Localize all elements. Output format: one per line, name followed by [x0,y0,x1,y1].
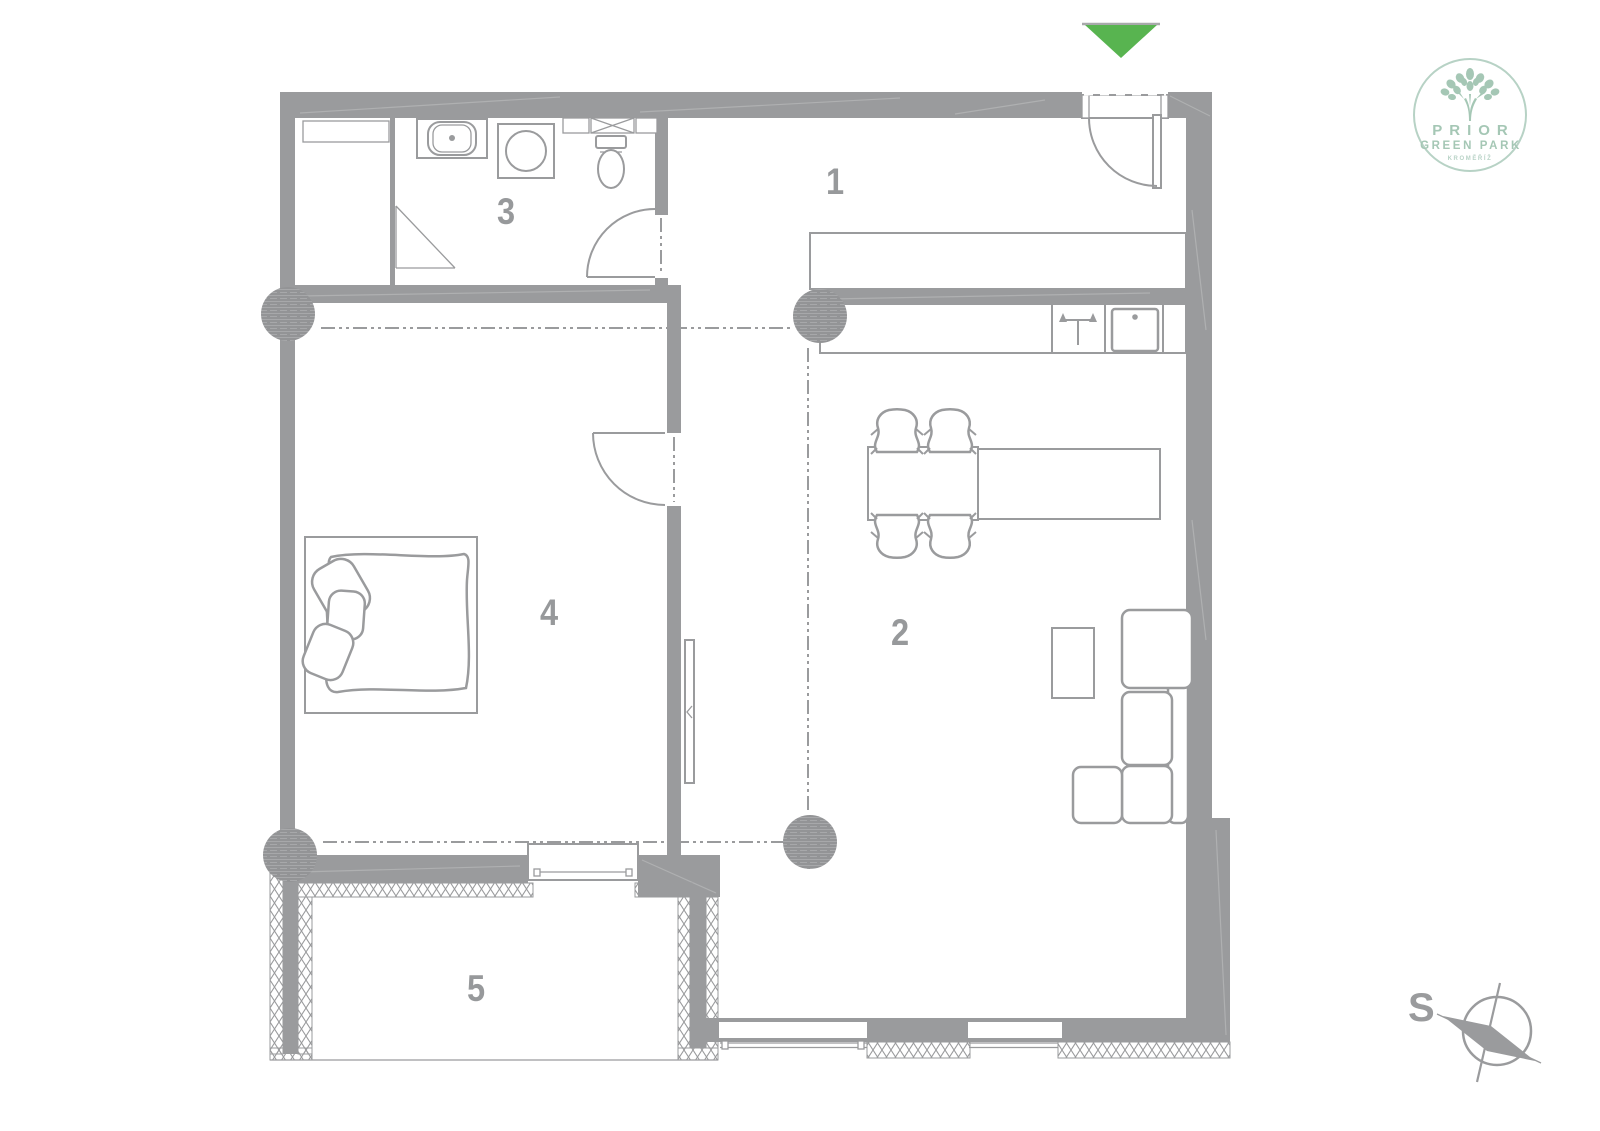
logo-subtitle: GREEN PARK [1415,140,1525,152]
room-label-2: 2 [891,612,909,654]
room-label-4: 4 [540,592,558,634]
balcony-door [528,844,638,880]
logo-prior-green-park: PRIOR GREEN PARK KROMĚŘÍŽ [1413,58,1527,172]
dining-chair [871,409,923,454]
compass-south-label: S [1408,986,1435,1031]
radiator-icon [685,640,694,783]
closet-door [396,206,455,268]
column [783,815,837,869]
bed [299,537,477,713]
kitchen-counter [820,304,1186,353]
column [263,828,317,882]
ottoman [1073,767,1122,823]
logo-title: PRIOR [1415,122,1525,139]
washing-machine-icon [498,124,554,178]
bathroom-fixtures [303,118,661,285]
floor-plan-drawing [0,0,1600,1131]
column [261,287,315,341]
bathroom-door [587,209,661,277]
coffee-table [1052,628,1094,698]
toilet-icon [596,136,626,188]
bedroom-door [593,433,674,505]
floor-plan-page: 1 2 3 4 5 PRIOR GREEN PARK KROMĚŘÍŽ S [0,0,1600,1131]
room-label-1: 1 [826,161,844,203]
kitchen-sink-icon [1112,309,1158,351]
dining-chair [924,409,976,454]
tree-icon [1435,66,1505,122]
duct-shaft-icon [563,118,657,133]
dining-chair [924,513,976,558]
entrance-door [1082,94,1168,188]
room-label-5: 5 [467,968,485,1010]
wardrobe [810,233,1186,289]
closet-shelf [303,121,389,142]
wash-basin-icon [417,119,487,158]
compass-rose-icon [1437,983,1541,1082]
column [793,289,847,343]
balcony-structure [270,868,718,1060]
kitchen-island [978,449,1160,519]
dining-set [868,409,1160,558]
logo-city: KROMĚŘÍŽ [1415,156,1525,162]
entrance-arrow-icon [1082,24,1160,58]
dining-table [868,447,978,520]
room-label-3: 3 [497,191,515,233]
dining-chair [871,513,923,558]
